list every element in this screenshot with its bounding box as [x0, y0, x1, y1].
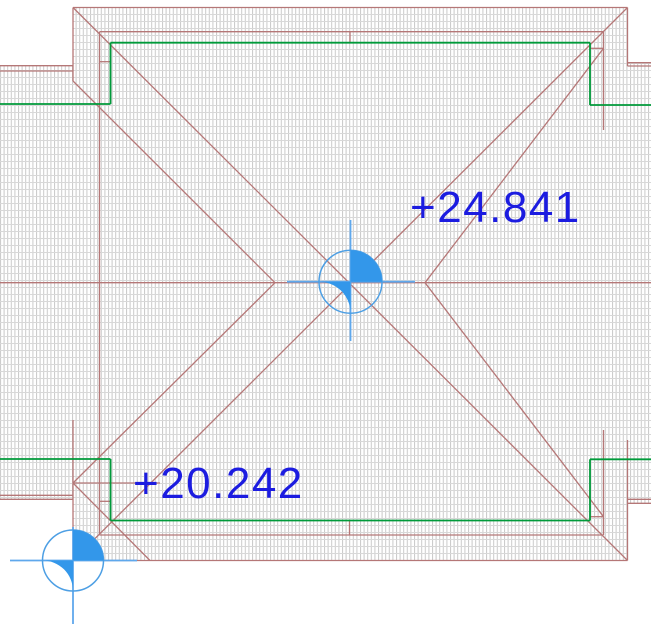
roof-plan-drawing [0, 0, 651, 641]
hatch-regions [0, 8, 651, 561]
elevation-label-upper[interactable]: +24.841 [410, 186, 581, 230]
cad-viewport[interactable]: +24.841 +20.242 [0, 0, 651, 641]
elevation-label-lower[interactable]: +20.242 [133, 462, 304, 506]
